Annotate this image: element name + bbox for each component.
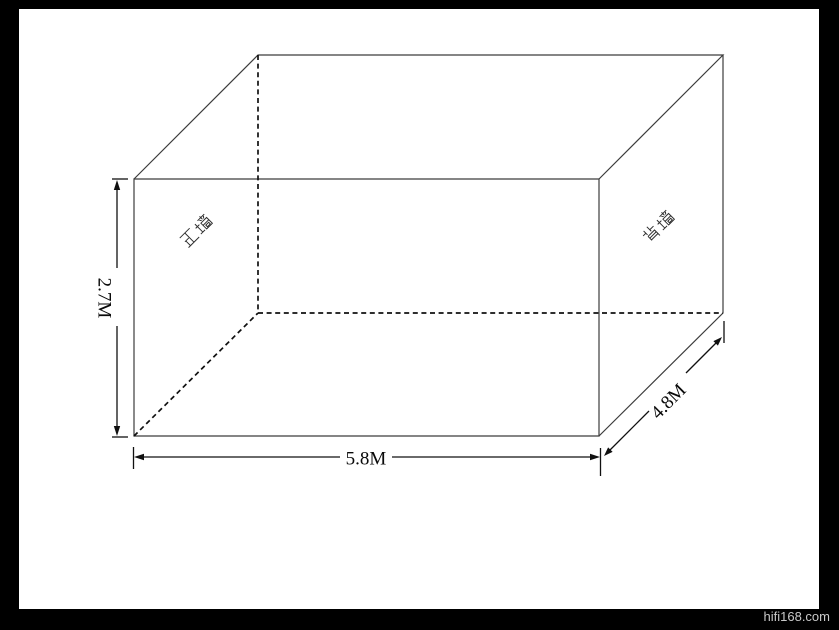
svg-text:2.7M: 2.7M (94, 278, 115, 319)
svg-text:hifi168.com: hifi168.com (764, 609, 830, 624)
svg-text:5.8M: 5.8M (346, 449, 387, 470)
